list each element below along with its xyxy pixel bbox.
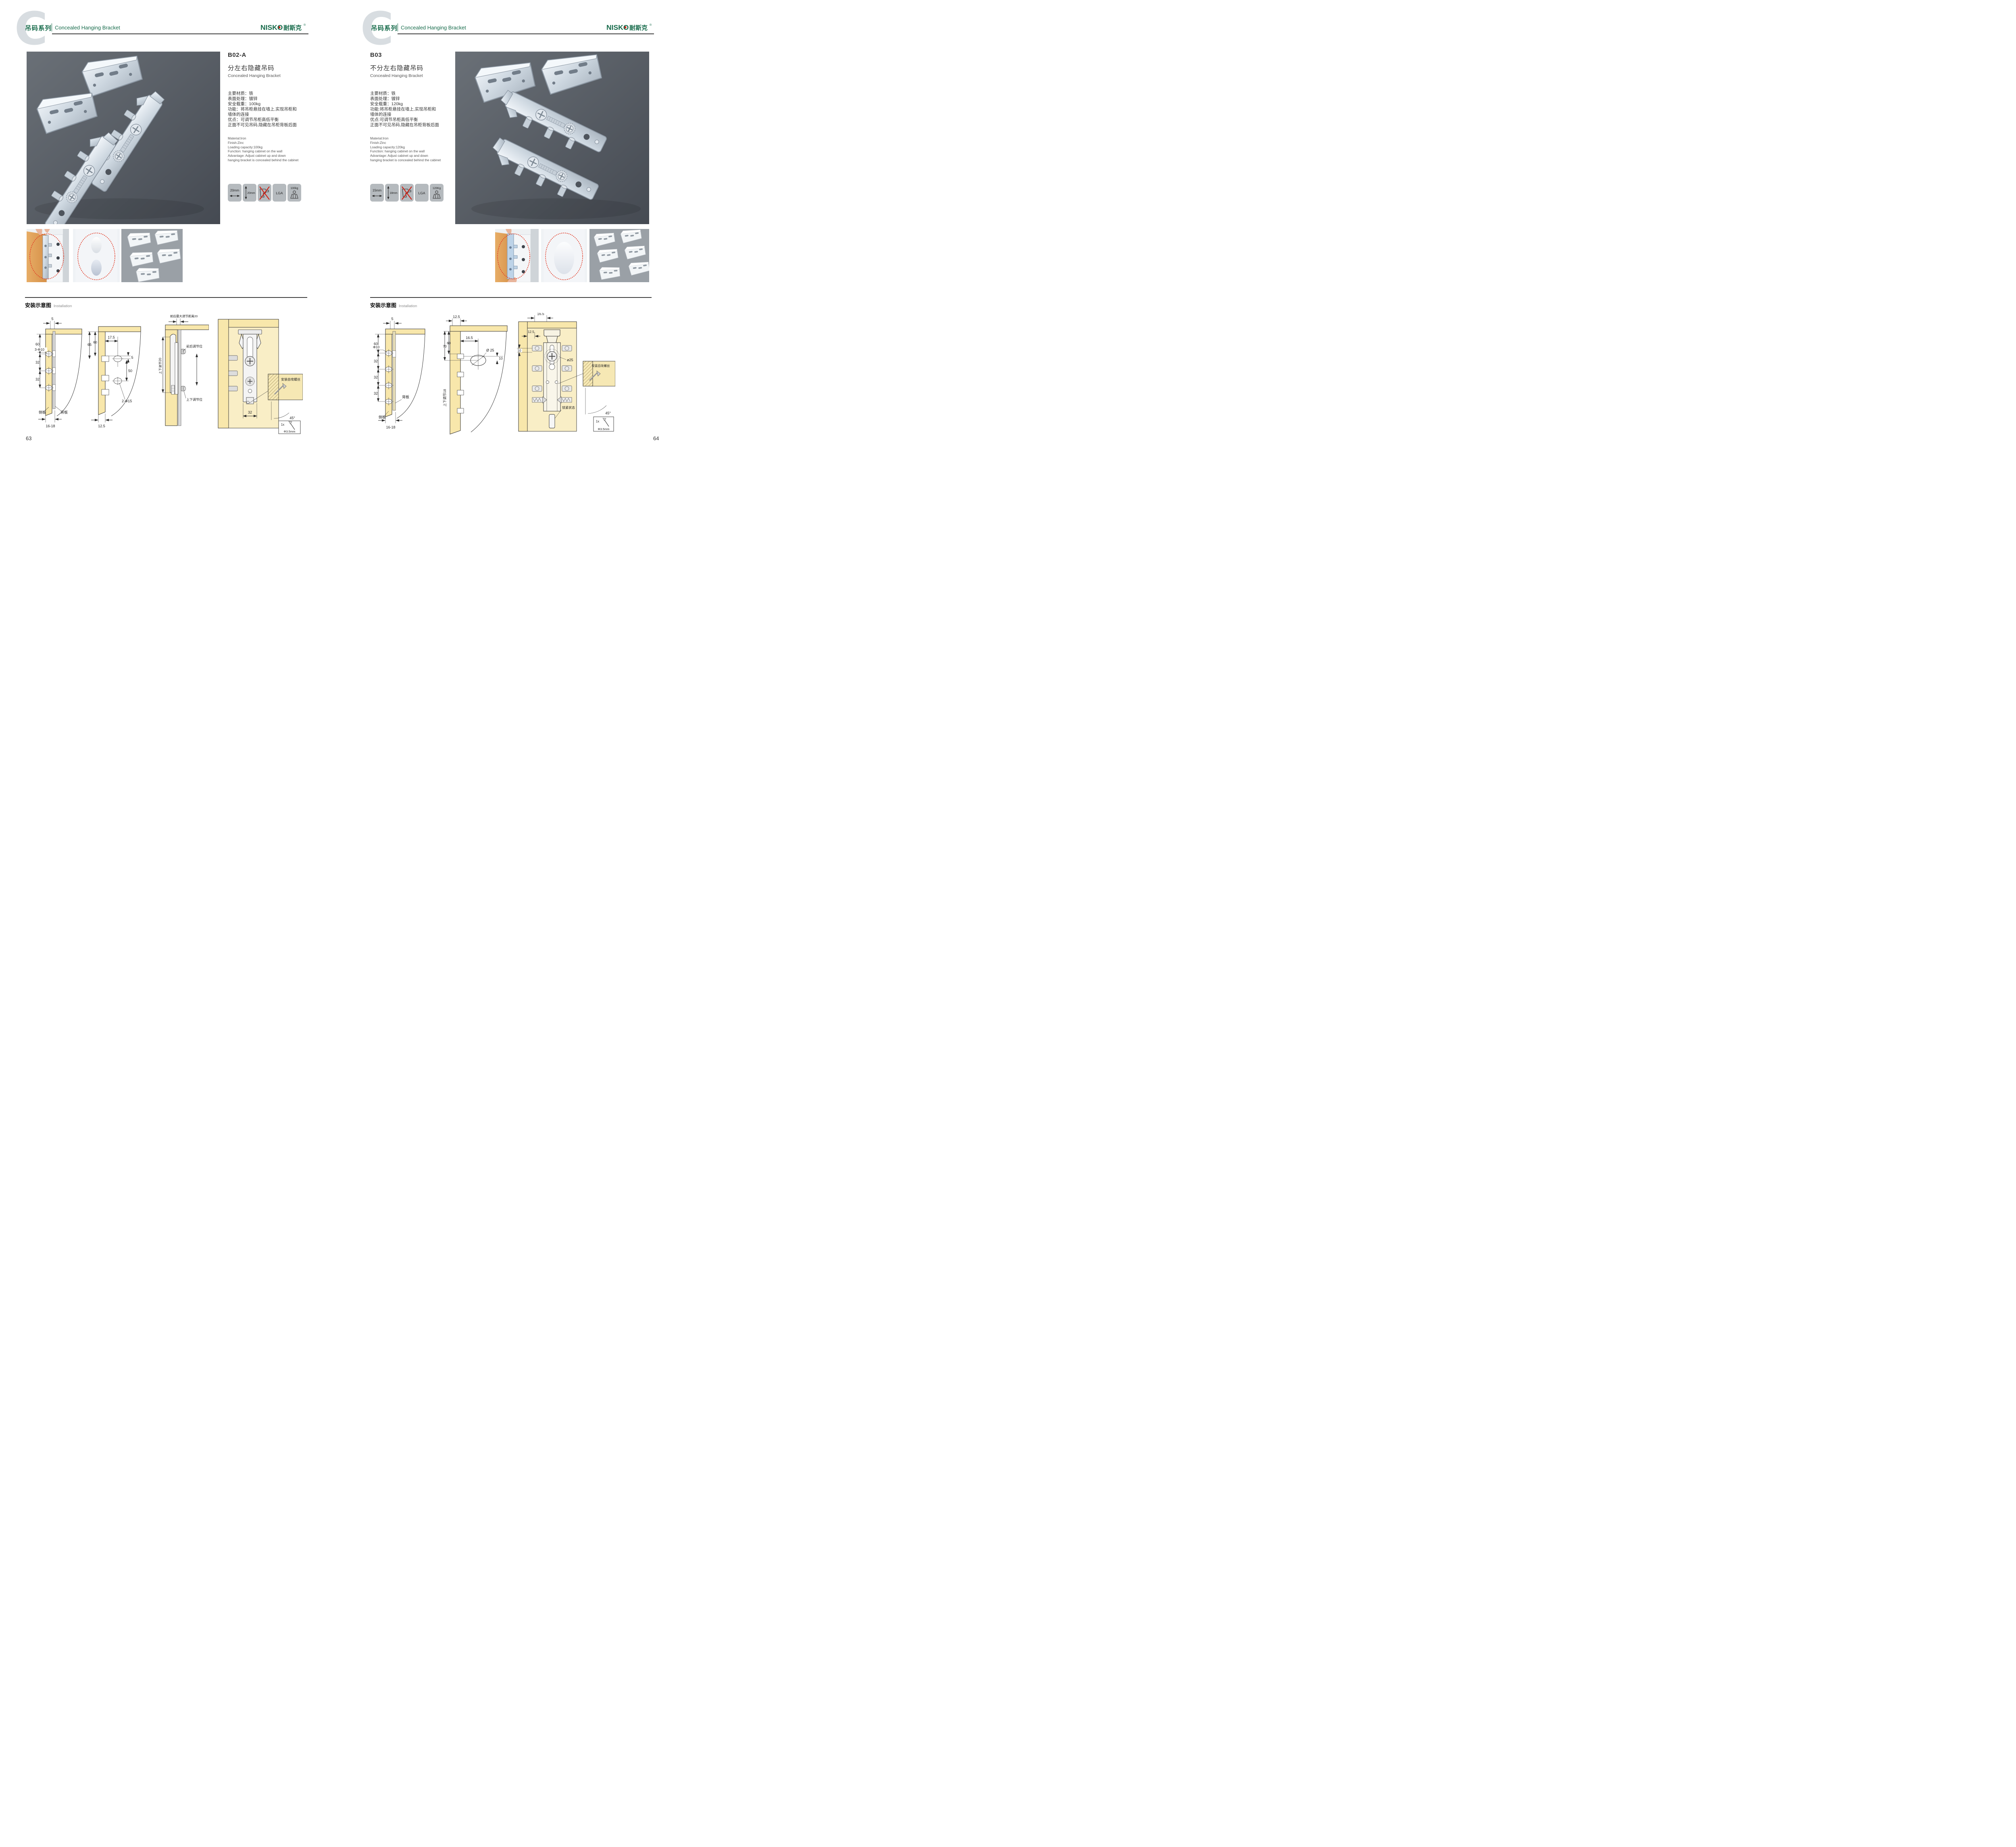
svg-text:15mm: 15mm	[373, 189, 382, 192]
product-title-zh: 不分左右隐藏吊码	[370, 63, 449, 72]
feature-icons-b03: 15mm 18mm LGA 120Kg	[370, 184, 444, 202]
svg-text:上下调节18: 上下调节18	[443, 389, 447, 407]
spec-line: 主要材质：铁	[370, 91, 449, 96]
svg-text:前后最大调节距离20: 前后最大调节距离20	[170, 314, 198, 318]
svg-text:安装自攻螺丝: 安装自攻螺丝	[281, 377, 300, 381]
screw-qty-box: 1x Φ3.5mm	[594, 417, 614, 431]
diagram-mounted-b03: 16.5 12.5 10 ø25 锁紧状态	[514, 313, 615, 437]
product-specs-zh: 主要材质：铁 表面处理：镀锌 安全载重：100kg 功能：将吊柜悬挂在墙上,实现…	[228, 91, 306, 128]
svg-text:65: 65	[87, 343, 92, 347]
spec-line: 优点:可调节吊柜高低平衡	[370, 117, 449, 123]
svg-text:10: 10	[518, 349, 521, 353]
svg-text:45°: 45°	[289, 416, 295, 420]
product-specs-en: Material:Iron Finish:Zinc Loading capaci…	[370, 137, 449, 163]
brand-logo-right: NISKO 耐斯克 ®	[606, 22, 654, 33]
diagram-side-drilling-b03: 12.5 70 60 16.5 Ø 25 10 上下调节18	[443, 315, 510, 435]
height-icon: 18mm	[385, 184, 399, 202]
spec-line: Function: hanging cabinet on the wall	[370, 150, 449, 154]
spec-line: hanging bracket is concealed behind the …	[370, 158, 449, 163]
svg-text:60: 60	[35, 342, 40, 346]
spec-line: 功能：将吊柜悬挂在墙上,实现吊柜和	[228, 107, 306, 112]
thumb-installed-b03	[495, 229, 539, 282]
lga-cert-icon: LGA	[415, 184, 429, 202]
svg-text:32: 32	[248, 410, 252, 414]
spec-line: 墙体的连接	[228, 112, 306, 117]
spec-line: Finish:Zinc	[370, 141, 449, 146]
svg-text:16.5: 16.5	[537, 313, 544, 316]
svg-text:前后调节位: 前后调节位	[186, 344, 202, 348]
diagram-drilling-b02a: 5 60 32 32 3-Φ10 侧板 背板 16-18	[34, 317, 83, 428]
install-rule-left	[25, 297, 307, 298]
width-icon: 20mm	[228, 184, 242, 202]
product-title-en: Concealed Hanging Bracket	[228, 73, 306, 78]
svg-text:锁紧状态: 锁紧状态	[562, 406, 575, 410]
svg-text:32: 32	[374, 375, 378, 379]
svg-text:70: 70	[443, 344, 447, 348]
page-number-right: 64	[653, 435, 659, 441]
load-capacity-icon: 100kg	[287, 184, 301, 202]
screw-qty-box: 1x Φ3.5mm	[279, 421, 300, 434]
product-photo-b02a	[27, 52, 220, 224]
header-rule-left	[52, 33, 308, 34]
svg-text:50: 50	[128, 369, 132, 373]
product-photo-b03	[455, 52, 649, 224]
svg-text:20mm: 20mm	[247, 192, 255, 195]
svg-text:背板: 背板	[60, 410, 68, 414]
spec-line: Loading capacity:100kg	[228, 146, 306, 150]
product-code: B02-A	[228, 52, 306, 58]
no-drill-icon	[400, 184, 414, 202]
logo-wordmark: NISKO	[260, 23, 283, 31]
spec-line: 正面不可见吊码,隐藏在吊柜背板后面	[370, 123, 449, 128]
lga-cert-icon: LGA	[273, 184, 286, 202]
thumb-parts-b03	[589, 229, 649, 282]
diagram-mounted-b02a: 32 安装自攻螺丝 45° 1x Φ3.5mm	[215, 317, 303, 435]
thumb-concealed-b02a	[73, 229, 120, 282]
svg-text:12.5: 12.5	[528, 330, 534, 334]
logo-zh: 耐斯克	[283, 24, 302, 31]
svg-text:上下调节位: 上下调节位	[186, 397, 202, 401]
spec-line: 功能:将吊柜悬挂在墙上,实现吊柜和	[370, 107, 449, 112]
spec-line: 主要材质：铁	[228, 91, 306, 96]
product-specs-en: Material:Iron Finish:Zinc Loading capaci…	[228, 137, 306, 163]
svg-text:5: 5	[51, 317, 53, 321]
load-capacity-icon: 120Kg	[430, 184, 444, 202]
svg-text:耐斯克: 耐斯克	[629, 24, 648, 31]
spec-line: 优点：可调节吊柜高低平衡	[228, 117, 306, 123]
svg-text:20mm: 20mm	[230, 189, 240, 192]
header-rule-right	[398, 33, 654, 34]
svg-text:5: 5	[391, 317, 393, 321]
install-title-en: Installation	[54, 304, 72, 308]
series-title-en-right: Concealed Hanging Bracket	[401, 25, 466, 31]
svg-text:32: 32	[374, 391, 378, 395]
logo-reg: ®	[304, 23, 306, 27]
install-title-zh: 安装示意图	[25, 302, 51, 308]
product-info-b03: B03 不分左右隐藏吊码 Concealed Hanging Bracket 主…	[370, 52, 449, 163]
series-title-zh-left: 吊码系列	[25, 23, 52, 32]
screw-detail-inset: 安装自攻螺丝	[268, 374, 303, 400]
svg-text:45°: 45°	[605, 411, 611, 415]
product-specs-zh: 主要材质：铁 表面处理：镀锌 安全载重：120kg 功能:将吊柜悬挂在墙上,实现…	[370, 91, 449, 128]
svg-text:®: ®	[650, 23, 652, 27]
series-title-zh-right: 吊码系列	[371, 23, 398, 32]
svg-text:12.5: 12.5	[453, 315, 460, 319]
spec-line: Loading capacity:120kg	[370, 146, 449, 150]
svg-text:18mm: 18mm	[389, 192, 398, 195]
svg-text:60: 60	[447, 341, 451, 345]
install-title-left: 安装示意图Installation	[25, 301, 72, 309]
feature-icons-b02a: 20mm 20mm LGA 100kg	[228, 184, 301, 202]
install-title-right: 安装示意图Installation	[370, 301, 417, 309]
svg-text:LGA: LGA	[418, 191, 425, 195]
svg-text:安装自攻螺丝: 安装自攻螺丝	[592, 364, 610, 368]
spec-line: 安全载重：120kg	[370, 102, 449, 107]
spec-line: 安全载重：100kg	[228, 102, 306, 107]
product-title-en: Concealed Hanging Bracket	[370, 73, 449, 78]
svg-text:Φ3.5mm: Φ3.5mm	[598, 427, 610, 431]
header-divider-left	[52, 23, 52, 31]
svg-text:16-18: 16-18	[46, 424, 55, 428]
product-info-b02a: B02-A 分左右隐藏吊码 Concealed Hanging Bracket …	[228, 52, 306, 163]
brand-logo-left: NISKO 耐斯克 ®	[260, 22, 308, 33]
product-code: B03	[370, 52, 449, 58]
svg-text:60: 60	[93, 340, 97, 344]
svg-text:12.5: 12.5	[98, 424, 105, 428]
no-drill-icon	[258, 184, 271, 202]
install-title-zh: 安装示意图	[370, 302, 396, 308]
spec-line: Material:Iron	[228, 137, 306, 141]
svg-text:3-Φ10: 3-Φ10	[35, 347, 44, 352]
series-title-en-left: Concealed Hanging Bracket	[55, 25, 120, 31]
svg-text:32: 32	[374, 359, 378, 363]
svg-text:1x: 1x	[596, 420, 599, 423]
diagram-side-drilling-b02a: 65 60 17.5 5 50 2-Φ15 12.5	[86, 318, 143, 428]
spec-line: 正面不可见吊码,隐藏在吊柜背板后面	[228, 123, 306, 128]
spec-line: 墙体的连接	[370, 112, 449, 117]
svg-text:120Kg: 120Kg	[433, 187, 441, 190]
svg-text:32: 32	[35, 377, 40, 381]
install-title-en: Installation	[399, 304, 417, 308]
svg-text:Ø 25: Ø 25	[486, 348, 494, 352]
header-divider-right	[398, 23, 398, 31]
spec-line: hanging bracket is concealed behind the …	[228, 158, 306, 163]
svg-text:10: 10	[499, 356, 503, 360]
svg-text:2-Φ15: 2-Φ15	[122, 399, 132, 403]
width-icon: 15mm	[370, 184, 384, 202]
svg-text:32: 32	[35, 360, 40, 364]
diagram-adjustment-b02a: 前后最大调节距离20 上下调节20 前后调节位 上下调节位	[159, 314, 209, 429]
svg-text:16-18: 16-18	[386, 425, 395, 429]
svg-text:ø25: ø25	[567, 358, 573, 362]
spec-line: 表面处理：镀锌	[228, 96, 306, 102]
svg-text:5: 5	[131, 356, 133, 360]
diagram-drilling-b03: 5 60 32 32 32 Φ10 背板 侧板 16-18	[373, 317, 427, 432]
spec-line: Material:Iron	[370, 137, 449, 141]
svg-text:Φ3.5mm: Φ3.5mm	[284, 430, 296, 433]
install-rule-right	[370, 297, 652, 298]
svg-text:17.5: 17.5	[108, 335, 115, 339]
spec-line: Advantage: Adjust cabinet up and down	[370, 154, 449, 158]
thumb-installed-b02a	[27, 229, 69, 282]
thumb-concealed-b03	[541, 229, 587, 282]
svg-text:Φ10: Φ10	[373, 345, 380, 349]
svg-text:背板: 背板	[402, 395, 409, 399]
svg-text:1x: 1x	[281, 423, 284, 426]
svg-text:上下调节20: 上下调节20	[159, 358, 162, 374]
height-icon: 20mm	[243, 184, 256, 202]
page-number-left: 63	[26, 435, 31, 441]
spec-line: Function: hanging cabinet on the wall	[228, 150, 306, 154]
spec-line: Advantage: Adjust cabinet up and down	[228, 154, 306, 158]
svg-text:16.5: 16.5	[466, 336, 473, 340]
svg-text:LGA: LGA	[276, 191, 283, 195]
screw-detail-inset: 安装自攻螺丝	[583, 361, 615, 386]
spec-line: 表面处理：镀锌	[370, 96, 449, 102]
svg-text:NISKO: NISKO	[606, 23, 629, 31]
svg-text:100kg: 100kg	[290, 187, 298, 190]
spec-line: Finish:Zinc	[228, 141, 306, 146]
thumb-parts-b02a	[121, 229, 183, 282]
product-title-zh: 分左右隐藏吊码	[228, 63, 306, 72]
